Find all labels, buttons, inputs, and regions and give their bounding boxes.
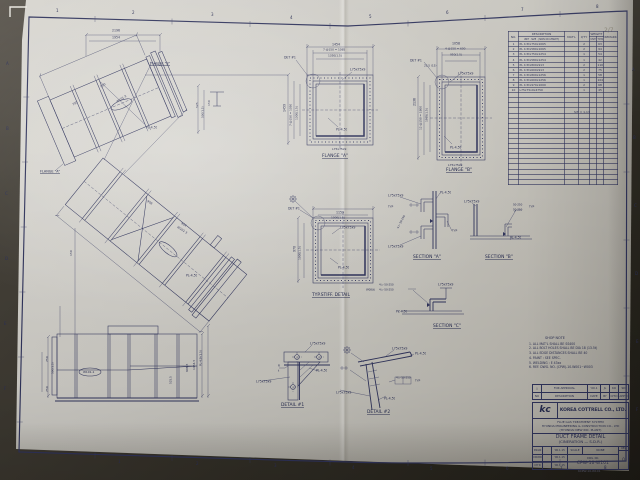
annotation: 7 @150 = 1085 <box>323 49 345 52</box>
signature-cell: '00.1.15 <box>552 447 567 454</box>
annotation: 50-250 <box>513 209 522 212</box>
parts-cell-description <box>519 179 565 184</box>
annotation: TYP <box>452 230 457 233</box>
signature-cell: '00.1.15 <box>552 462 567 469</box>
drawing-content: 1234567812345678ABCDEFABCDEF2/721961954P… <box>0 0 640 480</box>
annotation: PL-4.5t <box>146 126 157 129</box>
annotation: 4 <box>290 16 293 20</box>
main-flange-a-callout: FLANGE "A" <box>40 170 60 174</box>
scale-value: NONE <box>583 447 618 454</box>
annotation: 4 ▷ 50-250 <box>396 377 411 380</box>
annotation: F <box>636 408 638 412</box>
annotation: PL-4.5t <box>415 352 426 355</box>
shop-notes: SHOP NOTE 1. ALL MAT'L SHALL BE SS4002. … <box>529 336 633 370</box>
annotation: 25.5 (15) <box>424 65 436 68</box>
rev2-by: BY <box>601 393 610 400</box>
annotation: 1454.5 <box>193 360 196 370</box>
rev2-app: APP'D <box>619 393 628 400</box>
title-block: △ FOR APPROVAL '00.1 JL KO SD NO DESCRIP… <box>532 384 629 470</box>
company-name: KOREA COTTRELL CO., LTD. <box>558 403 628 418</box>
scale-label: SCALE <box>568 447 583 454</box>
annotation: C <box>5 192 8 196</box>
annotation: 150 <box>208 100 211 106</box>
parts-col-remark: REMARK <box>604 32 618 42</box>
section-b-label: SECTION "B" <box>485 255 513 260</box>
annotation: L75x75x9 <box>388 245 403 248</box>
signature-row: CH'D·'00.1.15 <box>533 462 567 469</box>
annotation: DET #1 <box>288 207 300 210</box>
parts-cell <box>597 179 604 184</box>
annotation: 970 <box>293 246 296 252</box>
annotation: 1454 <box>332 43 340 46</box>
signature-cell: · <box>543 455 552 462</box>
signature-cell: DSGN <box>533 447 543 454</box>
rev1-text: FOR APPROVAL <box>542 385 588 392</box>
annotation: 2 <box>196 462 199 466</box>
annotation: L75x75x9 <box>458 72 473 75</box>
parts-cell <box>565 179 579 184</box>
revision-table: △ FOR APPROVAL '00.1 JL KO SD NO DESCRIP… <box>532 384 629 400</box>
annotation: 908.5 <box>186 364 189 372</box>
annotation: 950(1.5) <box>450 54 462 57</box>
annotation: W101-3 <box>176 226 187 235</box>
annotation: PL-4.5t <box>316 369 327 372</box>
parts-cell <box>509 179 519 184</box>
annotation: W101-1 <box>83 371 94 374</box>
annotation: A <box>6 62 9 66</box>
signature-row: DRWN·'00.1.15 <box>533 455 567 463</box>
annotation: 1985(1.5) <box>426 108 429 122</box>
annotation: 50-250 <box>513 204 522 207</box>
rev2-symbol: NO <box>533 393 542 400</box>
annotation: 6 <box>446 11 449 15</box>
annotation: A <box>632 68 635 72</box>
annotation: E <box>636 340 638 344</box>
annotation: TYP <box>529 206 534 209</box>
flange-b-label: FLANGE "B" <box>446 168 472 173</box>
annotation: PL-4.5t <box>186 274 197 277</box>
annotation: 3 <box>274 464 277 468</box>
annotation: PL-4.5t <box>384 397 395 400</box>
annotation: 5 <box>430 467 433 471</box>
annotation: L75x75x9 <box>310 342 325 345</box>
section-c-label: SECTION "C" <box>433 324 461 329</box>
parts-col-weight: WEIGHT (kg) <box>590 32 604 37</box>
parts-list-table: NO. DESCRIPTION MAT'L Q'TY WEIGHT (kg) R… <box>508 31 618 185</box>
rev1-chk: KO <box>610 385 619 392</box>
shop-notes-title: SHOP NOTE <box>545 336 633 340</box>
shop-note-item: 6. REF. DWG. NO. (CPW)-10-W001~W003 <box>529 365 633 370</box>
annotation: PL-4.5t <box>450 146 461 149</box>
annotation: 750 <box>46 386 49 392</box>
annotation: PL-4.5t <box>336 128 347 131</box>
parts-cell <box>590 179 597 184</box>
parts-cell: 104 <box>597 77 604 82</box>
annotation: 7 <box>521 8 524 12</box>
detail-2-label: DETAIL #2 <box>367 410 390 415</box>
parts-col-matl: MAT'L <box>565 32 579 42</box>
annotation: PL-4.5t <box>440 191 451 194</box>
annotation: E <box>4 322 6 326</box>
section-a-label: SECTION "A" <box>413 255 441 260</box>
annotation: 500 <box>100 83 106 89</box>
annotation: 1300(1.5) <box>296 106 299 120</box>
annotation: 1459 <box>283 104 286 112</box>
rev2-text: DESCRIPTION <box>542 393 588 400</box>
annotation: 3 <box>211 13 214 17</box>
signature-grid: DSGN·'00.1.15DRWN·'00.1.15CH'D·'00.1.15 <box>533 447 568 469</box>
annotation: L75x75x9 <box>336 391 351 394</box>
annotation: PL-4.5t <box>338 266 349 269</box>
annotation: PL-4.5t <box>510 236 521 239</box>
annotation: R <box>278 365 280 368</box>
company-logo: kc <box>533 403 558 418</box>
annotation: L75x75x9 <box>438 283 453 286</box>
rev1-app: SD <box>619 385 628 392</box>
detail-1-label: DETAIL #1 <box>281 403 304 408</box>
annotation: PL-4.5t <box>396 310 407 313</box>
annotation: L75x75x9 <box>388 194 403 197</box>
annotation: L75x75x9 <box>392 347 407 350</box>
annotation: 2136 <box>413 98 416 106</box>
annotation: 1000(1.5) <box>331 217 345 220</box>
annotation: B <box>633 136 636 140</box>
parts-cell <box>604 179 618 184</box>
annotation: L75x75x9 <box>256 380 271 383</box>
typ-stiff-detail-label: TYP.STIFF. DETAIL <box>312 293 350 298</box>
annotation: D <box>635 272 638 276</box>
photo-background: 1234567812345678ABCDEFABCDEF2/721961954P… <box>0 0 640 480</box>
main-flange-b-callout: FLANGE "B" <box>150 62 170 66</box>
annotation: W101-2 <box>116 95 127 104</box>
annotation: 4 <box>352 466 355 470</box>
project-block: FLUE GAS TREATMENT SYSTEM HYUNDAI ENGINE… <box>533 419 628 434</box>
dwg-no-value: CPW-10-W101 <box>577 461 609 466</box>
annotation: C <box>634 204 637 208</box>
parts-cell: 110 <box>597 62 604 67</box>
annotation: 750 <box>46 356 49 362</box>
annotation: 7 @150 = 1050 <box>290 104 293 126</box>
annotation: 750 <box>72 101 78 107</box>
annotation: KCPW-10-W101 <box>578 470 601 473</box>
rev1-symbol: △ <box>533 385 542 392</box>
annotation: L75x75x9 <box>350 68 365 71</box>
annotation: 5 <box>369 15 372 19</box>
rev2-date: DATE <box>588 393 601 400</box>
annotation: 1 <box>56 9 59 13</box>
drawing-title-block: DUCT FRAME DETAIL (CINERATION — S.D.R.) <box>533 434 628 447</box>
annotation: 1350(1.5) <box>328 55 342 58</box>
annotation: L75x75x9 <box>464 200 479 203</box>
annotation: 1058 <box>452 42 460 45</box>
annotation: 1159 <box>336 211 344 214</box>
annotation: 908 <box>146 200 152 206</box>
signature-cell: · <box>543 447 552 454</box>
signature-cell: DRWN <box>533 455 543 462</box>
table-row-empty <box>509 179 618 184</box>
rev-value: 0 <box>619 451 628 469</box>
title-block-main: kc KOREA COTTRELL CO., LTD. FLUE GAS TRE… <box>532 402 629 470</box>
annotation: D <box>5 257 8 261</box>
annotation: DET #1 <box>410 59 422 62</box>
parts-col-qty: Q'TY <box>579 32 590 42</box>
annotation: PL-4.5t(1.5) <box>200 350 203 366</box>
annotation: TYP <box>415 380 420 383</box>
parts-cell <box>579 179 590 184</box>
signature-cell: '00.1.15 <box>552 455 567 462</box>
rev1-date: '00.1 <box>588 385 601 392</box>
annotation: 4 ▷ 50-250 <box>379 284 394 287</box>
annotation: 1 <box>118 460 121 464</box>
annotation: 4 @150 = 600 <box>445 48 465 51</box>
annotation: 1000(1.5) <box>299 246 302 260</box>
signature-cell: · <box>543 462 552 469</box>
annotation: 12 @150 = 1800 <box>420 106 423 130</box>
annotation: 8 <box>596 5 599 9</box>
annotation: 2 <box>132 11 135 15</box>
parts-total: S/T = 1.13 <box>574 110 590 114</box>
annotation: 150 <box>70 250 73 256</box>
annotation: TYP <box>388 206 393 209</box>
signature-cell: CH'D <box>533 462 543 469</box>
annotation: 525.5 <box>170 376 173 384</box>
rev2-chk: CH'D <box>610 393 619 400</box>
annotation: 1954 <box>112 36 120 39</box>
annotation: 2196 <box>112 29 120 32</box>
parts-col-no: NO. <box>509 32 519 42</box>
annotation: 500(1.5) <box>52 362 55 374</box>
annotation: L75x75x9 <box>340 226 355 229</box>
annotation: t <box>278 370 279 373</box>
flange-a-label: FLANGE "A" <box>322 154 348 159</box>
annotation: 6 <box>506 467 509 471</box>
annotation: F <box>4 387 6 391</box>
annotation: DET #1 <box>284 56 296 59</box>
project-line-3: (HYUNDAI NEW INC. PLANT) <box>533 428 628 432</box>
annotation: 4 ▷ 50-250 <box>397 215 406 229</box>
annotation: 4 ▷ 50-250 <box>379 289 394 292</box>
signature-row: DSGN·'00.1.15 <box>533 447 567 455</box>
annotation: W08(t) <box>366 289 375 292</box>
annotation: 500(1.5) <box>202 106 205 118</box>
rev1-by: JL <box>601 385 610 392</box>
drawing-subtitle: (CINERATION — S.D.R.) <box>533 440 628 445</box>
project-line-2: HYUNDAI ENGINEERING & CONSTRUCTION CO., … <box>533 424 628 428</box>
annotation: L75x75x9 <box>332 148 346 151</box>
annotation: B <box>6 127 9 131</box>
annotation: 525 <box>196 102 199 108</box>
